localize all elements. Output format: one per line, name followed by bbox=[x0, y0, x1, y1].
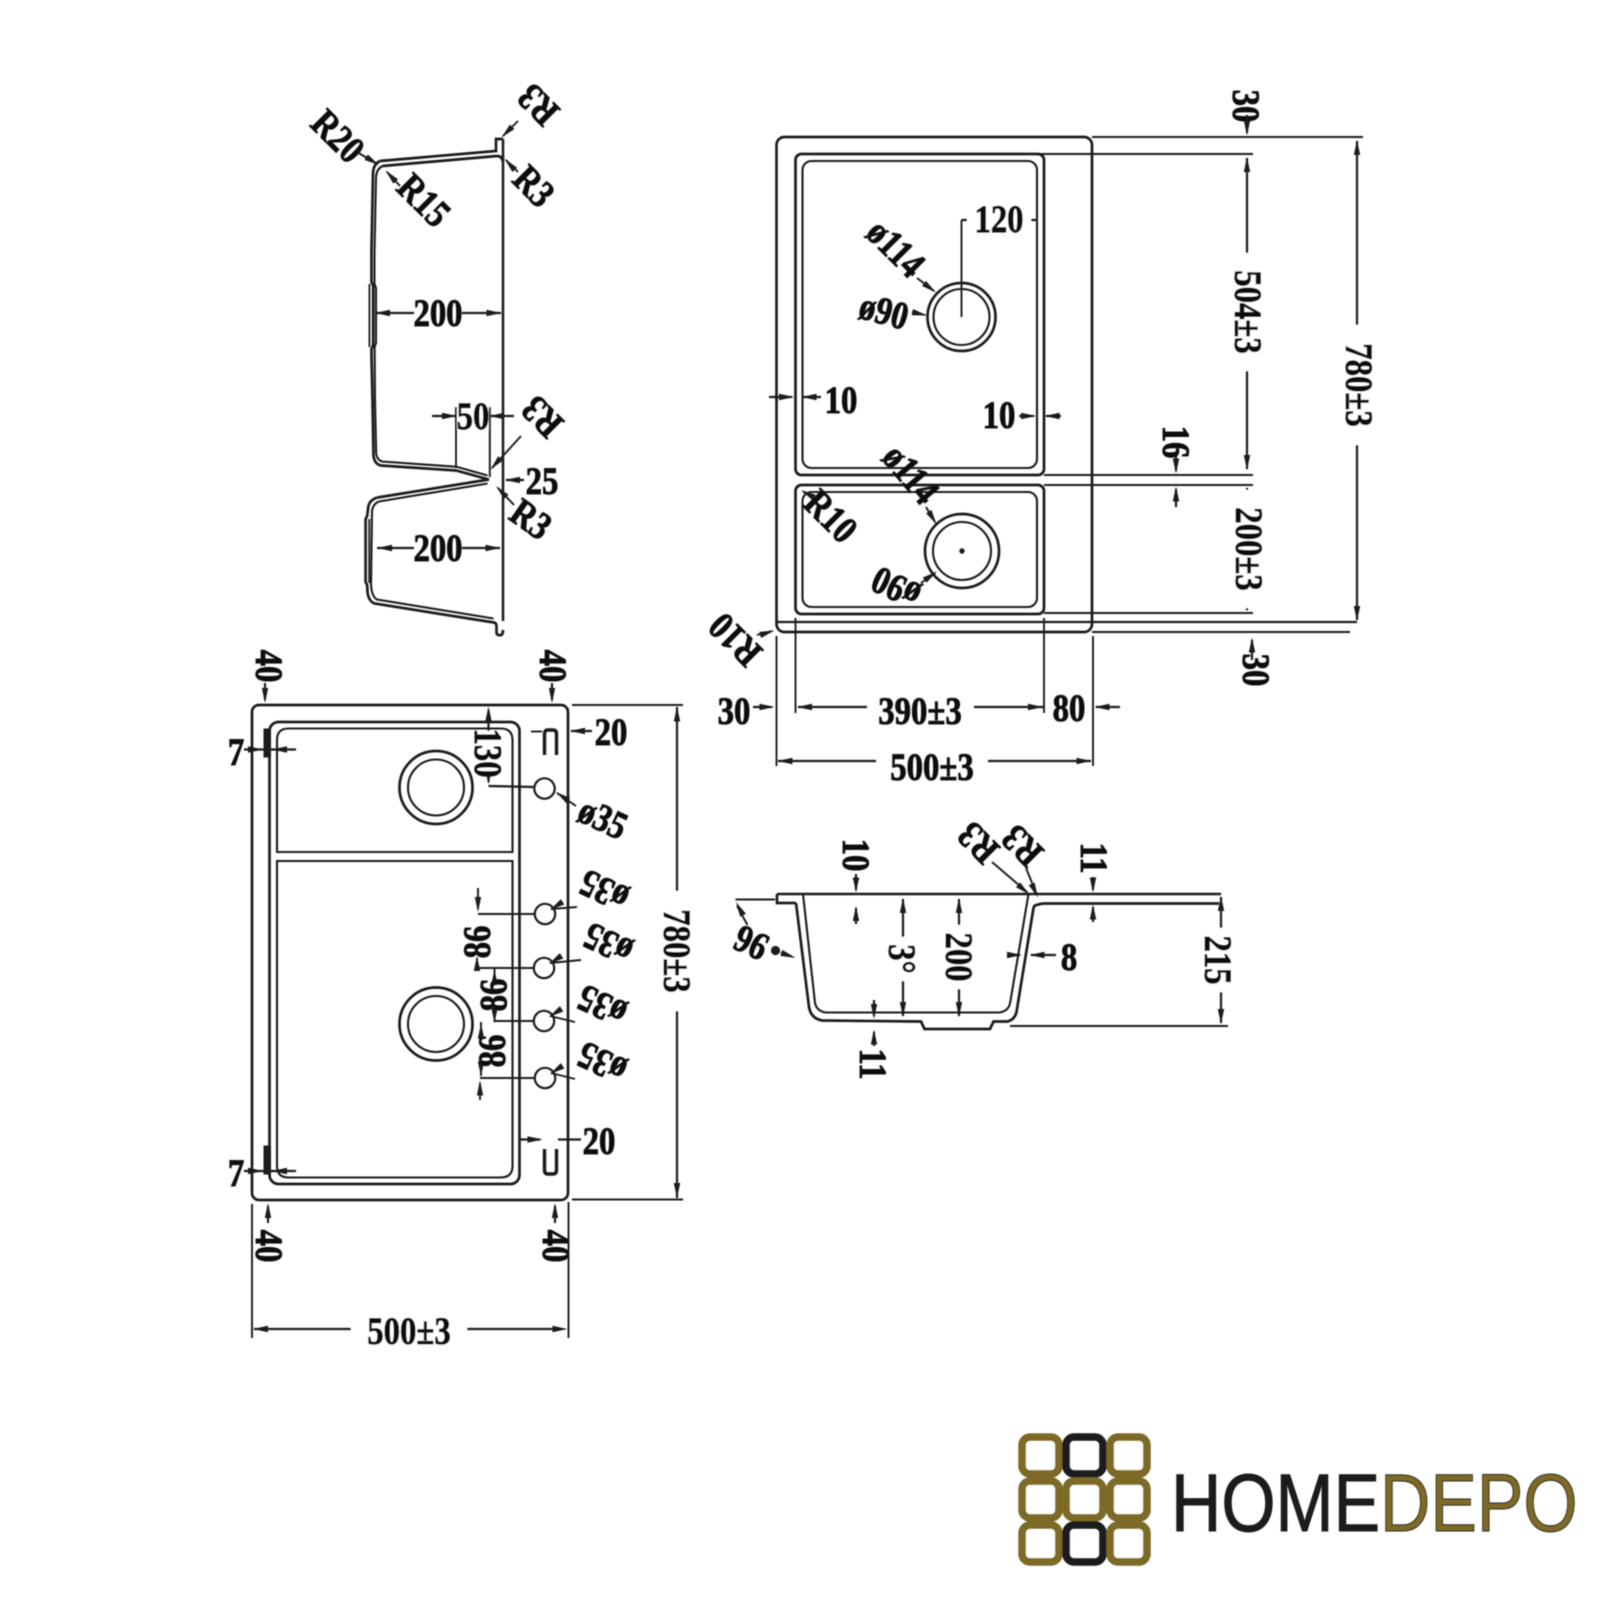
svg-text:86: 86 bbox=[472, 979, 515, 1012]
svg-text:200: 200 bbox=[413, 526, 462, 569]
svg-text:10: 10 bbox=[825, 378, 858, 421]
svg-text:40: 40 bbox=[247, 1230, 290, 1263]
svg-text:30: 30 bbox=[1224, 90, 1267, 123]
svg-text:80: 80 bbox=[1053, 686, 1086, 729]
svg-text:200±3: 200±3 bbox=[1227, 507, 1270, 590]
svg-text:780±3: 780±3 bbox=[1337, 343, 1380, 426]
svg-text:200: 200 bbox=[413, 291, 462, 334]
svg-text:30: 30 bbox=[1234, 654, 1277, 687]
svg-text:500±3: 500±3 bbox=[890, 745, 973, 788]
svg-text:20: 20 bbox=[595, 710, 628, 753]
svg-text:200: 200 bbox=[937, 932, 980, 981]
svg-text:40: 40 bbox=[531, 650, 574, 683]
svg-text:7: 7 bbox=[228, 1151, 244, 1194]
svg-text:390±3: 390±3 bbox=[878, 689, 961, 732]
svg-text:215: 215 bbox=[1196, 935, 1239, 984]
svg-text:780±3: 780±3 bbox=[655, 909, 698, 992]
svg-text:11: 11 bbox=[851, 1049, 894, 1080]
svg-text:50: 50 bbox=[457, 394, 490, 437]
svg-text:20: 20 bbox=[583, 1119, 616, 1162]
svg-text:7: 7 bbox=[228, 730, 244, 773]
svg-text:11: 11 bbox=[1072, 843, 1115, 874]
svg-text:30: 30 bbox=[718, 689, 751, 732]
svg-text:10: 10 bbox=[983, 393, 1016, 436]
svg-text:86: 86 bbox=[470, 1035, 513, 1068]
svg-text:HOMEDEPO: HOMEDEPO bbox=[1171, 1458, 1578, 1550]
svg-text:86: 86 bbox=[455, 926, 498, 959]
svg-text:130: 130 bbox=[466, 728, 509, 777]
svg-text:40: 40 bbox=[247, 650, 290, 683]
svg-text:120: 120 bbox=[974, 197, 1023, 240]
svg-text:8: 8 bbox=[1061, 935, 1077, 978]
svg-text:40: 40 bbox=[534, 1230, 577, 1263]
svg-text:16: 16 bbox=[1154, 426, 1197, 459]
svg-text:504±3: 504±3 bbox=[1226, 270, 1269, 353]
svg-text:10: 10 bbox=[834, 839, 877, 872]
svg-text:3°: 3° bbox=[880, 944, 923, 973]
svg-text:500±3: 500±3 bbox=[367, 1309, 450, 1352]
